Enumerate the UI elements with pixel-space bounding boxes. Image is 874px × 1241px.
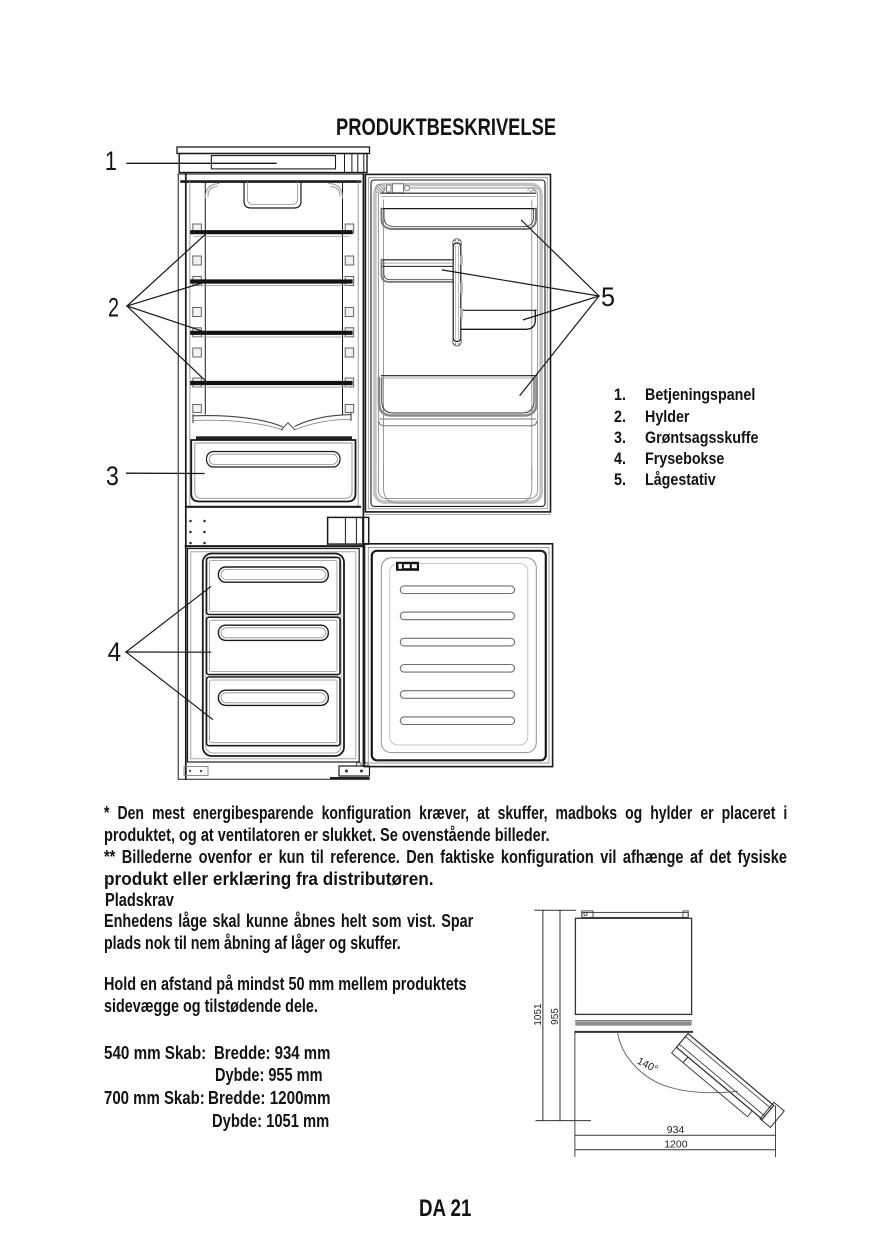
svg-text:1051: 1051	[533, 1003, 544, 1026]
svg-text:1: 1	[105, 146, 117, 176]
svg-text:4: 4	[108, 637, 122, 667]
svg-text:1200: 1200	[664, 1139, 688, 1151]
svg-text:3: 3	[106, 461, 119, 491]
svg-text:140°: 140°	[635, 1055, 660, 1076]
svg-text:934: 934	[667, 1124, 685, 1136]
svg-text:955: 955	[550, 1008, 561, 1025]
svg-text:5: 5	[601, 282, 615, 312]
svg-text:2: 2	[108, 293, 119, 323]
